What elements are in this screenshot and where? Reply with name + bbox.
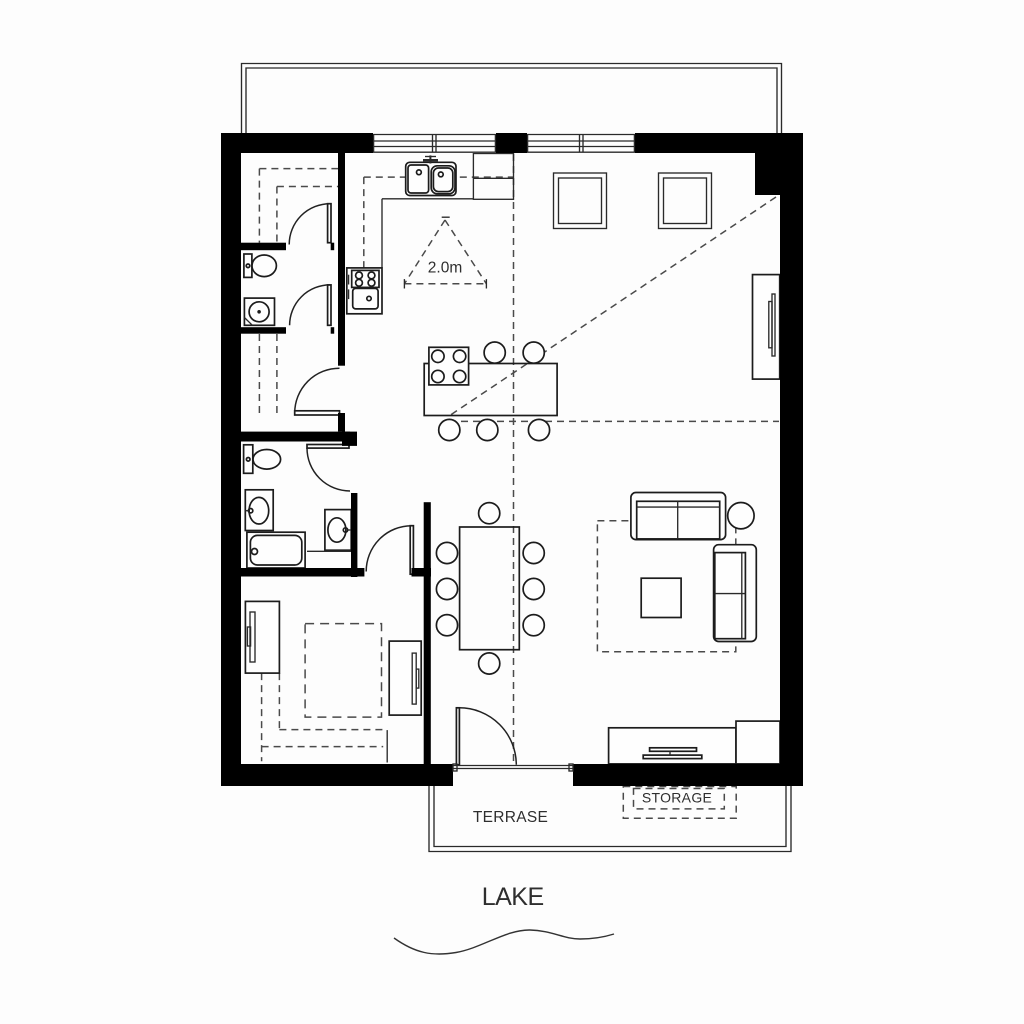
- svg-text:LAKE: LAKE: [482, 883, 544, 911]
- svg-text:STORAGE: STORAGE: [642, 790, 712, 806]
- svg-text:2.0m: 2.0m: [428, 260, 462, 277]
- svg-text:TERRASE: TERRASE: [473, 809, 548, 826]
